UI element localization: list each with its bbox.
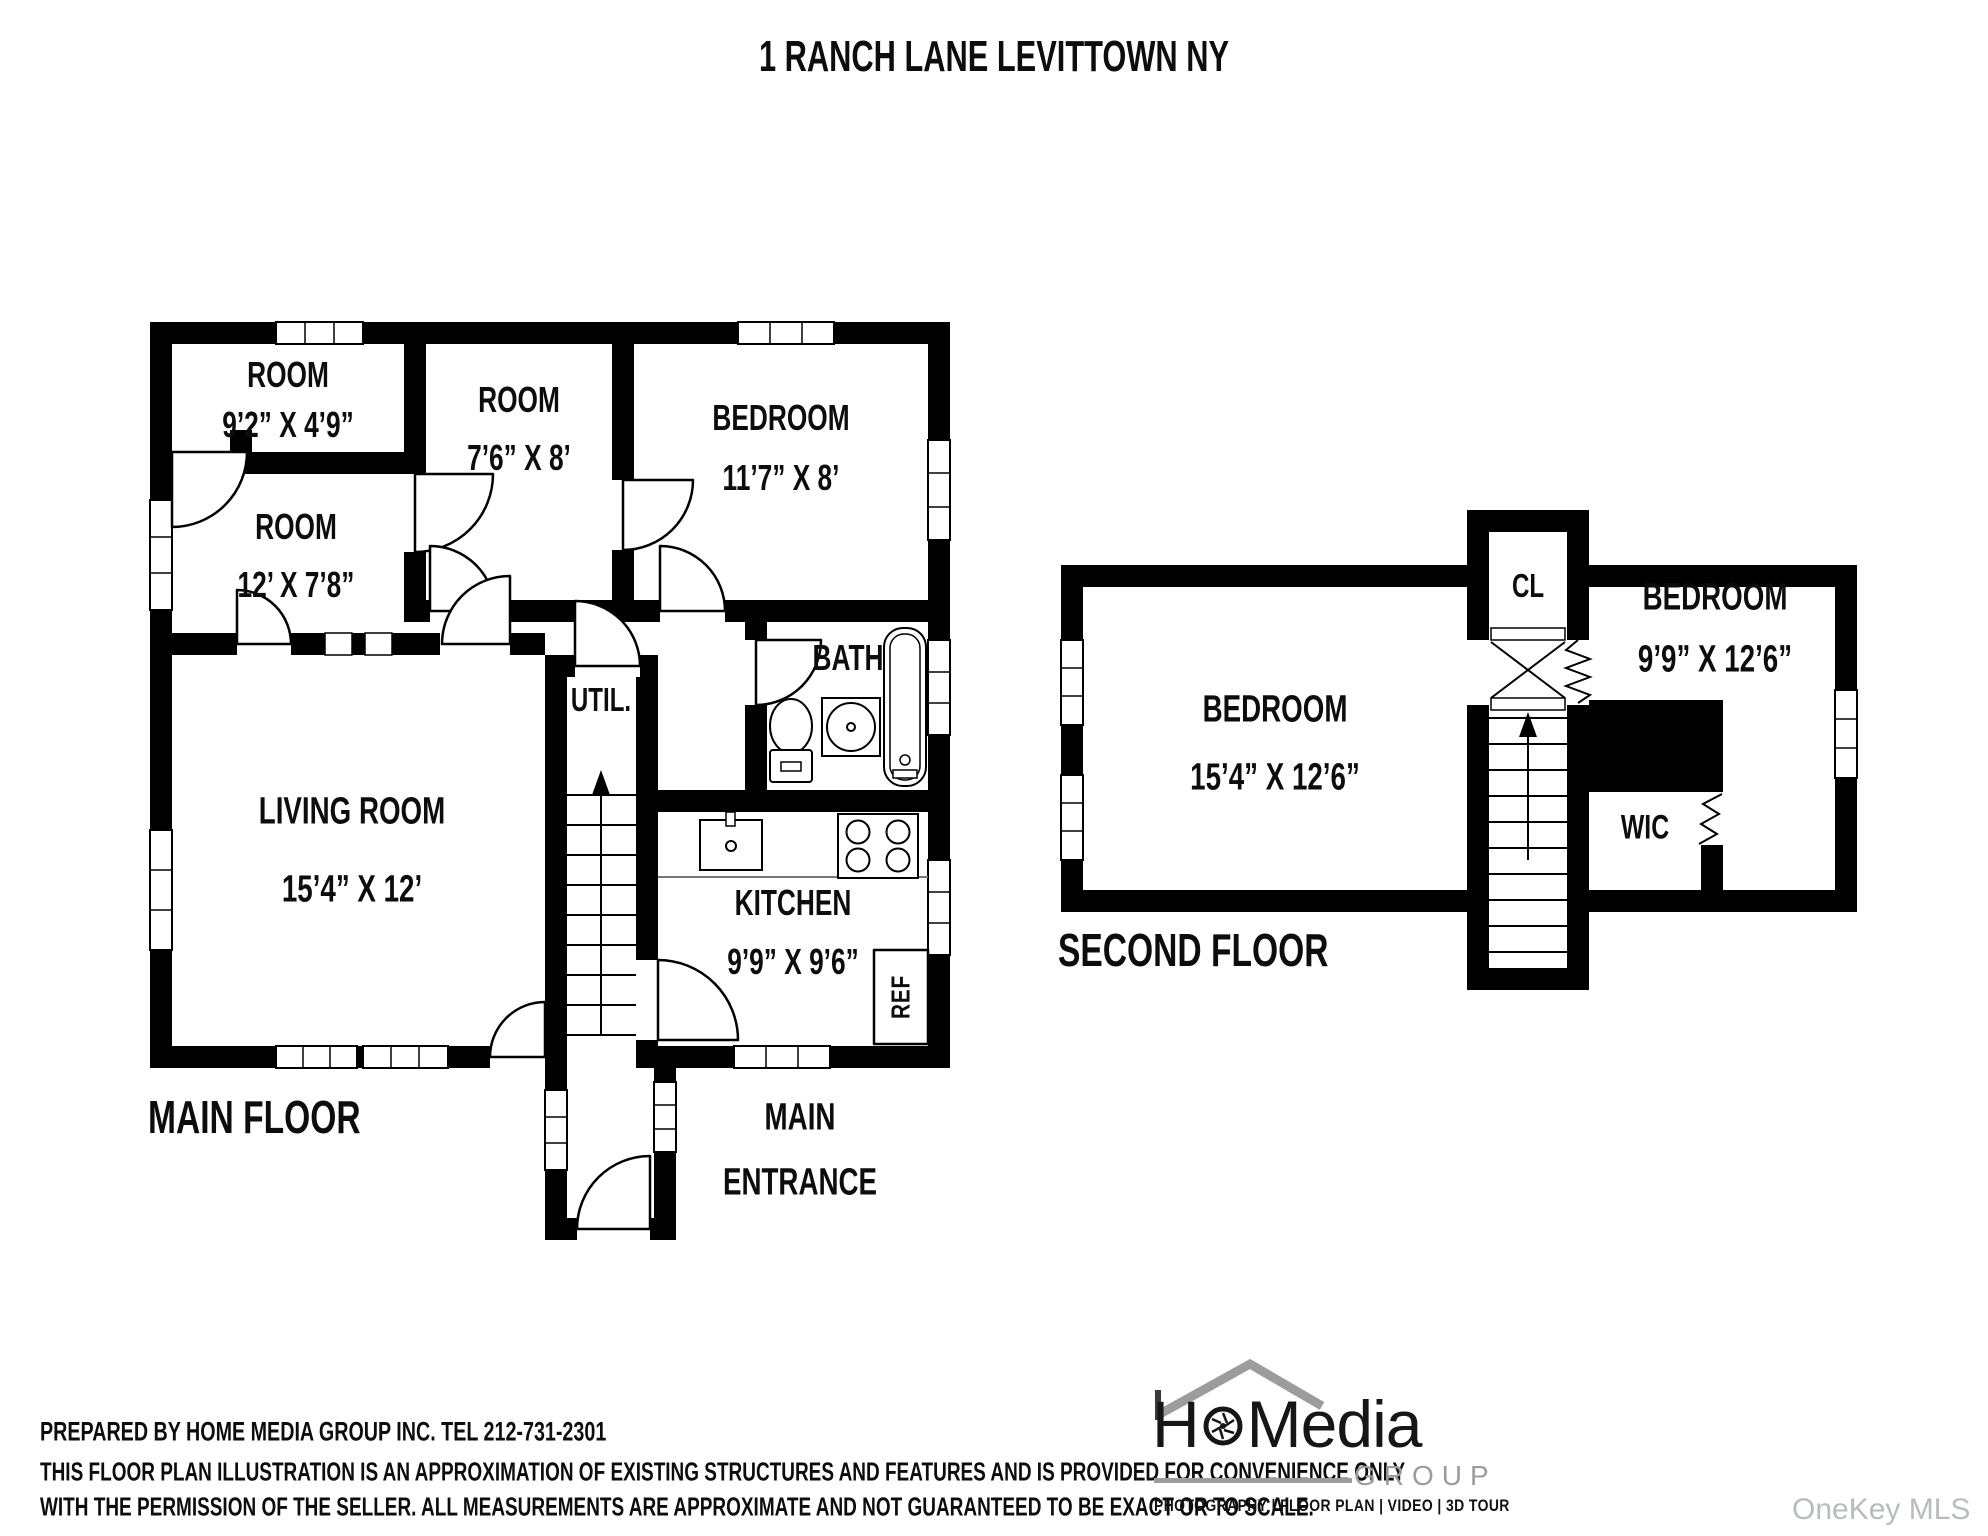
main-entrance-label-line1: MAIN xyxy=(765,1097,836,1140)
toilet-icon xyxy=(770,699,812,753)
logo-letter-h: H xyxy=(1152,1394,1199,1454)
room-label-bedroom1-dims: 15’4” X 12’6” xyxy=(1190,757,1360,800)
second-floor-stairs xyxy=(1489,628,1567,952)
footer-disclaimer-line2: WITH THE PERMISSION OF THE SELLER. ALL M… xyxy=(40,1492,1314,1523)
second-floor-label: SECOND FLOOR xyxy=(1058,923,1329,977)
room-label-util: UTIL. xyxy=(571,681,631,719)
logo-group-text: GROUP xyxy=(1354,1460,1497,1492)
room-label-bedroom2-name: BEDROOM xyxy=(1643,577,1788,620)
room-label-bedroom1-name: BEDROOM xyxy=(1203,689,1348,732)
logo-tagline: PHOTOGRAPHY | FLOOR PLAN | VIDEO | 3D TO… xyxy=(1154,1496,1510,1516)
room-label-kitchen-dims: 9’9” X 9’6” xyxy=(727,941,858,983)
room-label-living-name: LIVING ROOM xyxy=(259,791,445,834)
stairs-up-arrow xyxy=(1519,712,1537,737)
room-label-bedroom2-dims: 9’9” X 12’6” xyxy=(1638,639,1792,682)
closet-accordion-door xyxy=(1566,640,1590,703)
onekey-mls-watermark: OneKey MLS xyxy=(1792,1493,1970,1527)
home-media-group-logo: H M edia GROUP PHOTOGRAPHY | FLOOR PLAN … xyxy=(1152,1356,1492,1532)
room-label-wic: WIC xyxy=(1621,809,1669,848)
floor-plan-page: 1 RANCH LANE LEVITTOWN NY ROOM 9’2” X 4’… xyxy=(0,0,1988,1536)
page-title: 1 RANCH LANE LEVITTOWN NY xyxy=(759,32,1229,82)
camera-aperture-icon xyxy=(1201,1404,1245,1448)
wall-block xyxy=(1589,700,1723,792)
room-label-room3-name: ROOM xyxy=(255,506,337,548)
room-label-bedroom-dims: 11’7” X 8’ xyxy=(723,457,840,499)
room-label-room1-dims: 9’2” X 4’9” xyxy=(222,404,353,446)
stairs-up-arrow xyxy=(592,770,610,795)
room-label-living-dims: 15’4” X 12’ xyxy=(282,869,422,912)
room-label-room2-name: ROOM xyxy=(478,379,560,421)
main-entrance-label-line2: ENTRANCE xyxy=(723,1162,877,1205)
main-floor-label: MAIN FLOOR xyxy=(148,1090,361,1144)
logo-letter-m: M xyxy=(1247,1394,1301,1454)
logo-letters-edia: edia xyxy=(1301,1394,1422,1454)
room-label-room1-name: ROOM xyxy=(247,354,329,396)
room-label-bath: BATH xyxy=(812,637,883,679)
room-label-bedroom-name: BEDROOM xyxy=(712,397,849,439)
floor-plan-drawing xyxy=(0,0,1988,1536)
ref-label: REF xyxy=(886,975,917,1019)
room-label-cl: CL xyxy=(1512,567,1544,605)
room-label-room2-dims: 7’6” X 8’ xyxy=(467,437,571,479)
logo-divider-line xyxy=(1154,1478,1352,1483)
room-label-room3-dims: 12’ X 7’8” xyxy=(238,564,355,606)
wic-accordion-door xyxy=(1699,794,1722,844)
footer-prepared-by: PREPARED BY HOME MEDIA GROUP INC. TEL 21… xyxy=(40,1417,606,1448)
room-label-kitchen-name: KITCHEN xyxy=(735,882,852,924)
main-stairs xyxy=(567,770,636,1035)
